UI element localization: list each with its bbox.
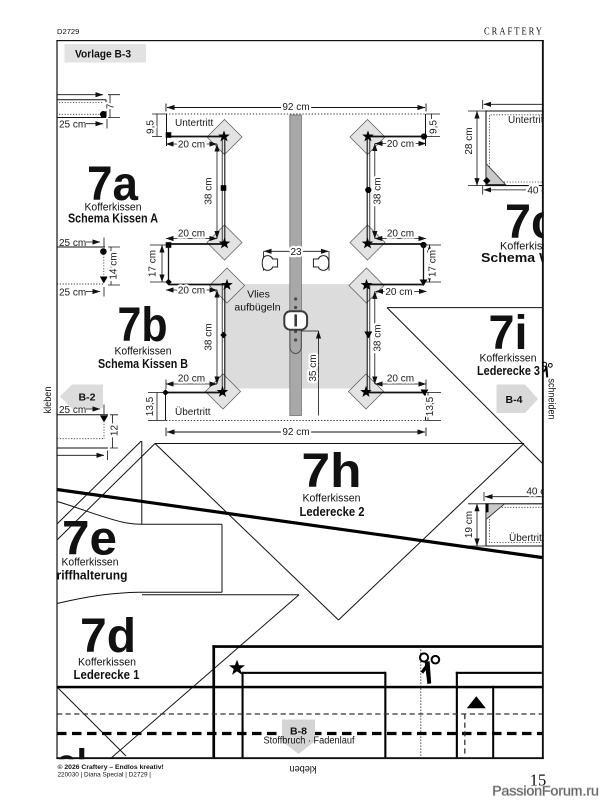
svg-text:92 cm: 92 cm	[282, 427, 309, 438]
svg-text:35 cm: 35 cm	[308, 354, 319, 381]
svg-text:Untertritt: Untertritt	[508, 115, 547, 126]
svg-text:20 cm: 20 cm	[178, 286, 205, 297]
svg-text:aufbügeln: aufbügeln	[234, 302, 280, 314]
svg-text:B-4: B-4	[506, 394, 523, 406]
svg-text:Kofferkissen: Kofferkissen	[480, 353, 537, 365]
svg-text:Vlies: Vlies	[247, 289, 270, 301]
svg-text:20 cm: 20 cm	[387, 229, 414, 240]
svg-text:B-8: B-8	[290, 726, 307, 738]
svg-text:20 cm: 20 cm	[387, 139, 414, 150]
svg-text:38 cm: 38 cm	[373, 177, 384, 204]
svg-text:20 cm: 20 cm	[385, 287, 412, 298]
svg-text:Übertritt: Übertritt	[509, 532, 545, 544]
svg-text:Kofferkissen: Kofferkissen	[303, 493, 361, 505]
svg-text:Stoffbruch · Fadenlauf: Stoffbruch · Fadenlauf	[264, 736, 355, 747]
svg-text:Lederecke 3: Lederecke 3	[477, 364, 540, 378]
svg-text:92 cm: 92 cm	[282, 102, 309, 113]
svg-text:25 cm: 25 cm	[59, 120, 86, 131]
svg-text:38 cm: 38 cm	[204, 323, 215, 350]
svg-text:CRAFTERY: CRAFTERY	[484, 27, 544, 38]
svg-text:38 cm: 38 cm	[373, 324, 384, 351]
svg-text:23: 23	[290, 247, 302, 258]
svg-text:schneiden: schneiden	[546, 379, 558, 420]
svg-text:Vorlage B-3: Vorlage B-3	[75, 49, 131, 61]
svg-text:riffhalterung: riffhalterung	[57, 569, 128, 583]
svg-text:38 cm: 38 cm	[204, 177, 215, 204]
svg-text:25 cm: 25 cm	[59, 288, 86, 299]
svg-text:© 2026 Craftery – Endlos kreat: © 2026 Craftery – Endlos kreativ!	[58, 763, 164, 771]
svg-text:Kofferkissen: Kofferkissen	[115, 346, 172, 358]
svg-text:kleben: kleben	[289, 763, 316, 775]
svg-text:7h: 7h	[302, 445, 362, 498]
svg-text:13,5: 13,5	[145, 396, 156, 416]
svg-text:Lederecke 1: Lederecke 1	[74, 668, 140, 682]
svg-text:19 cm: 19 cm	[464, 511, 475, 538]
svg-text:Kofferkissen: Kofferkissen	[62, 557, 119, 569]
svg-text:13,5: 13,5	[425, 396, 436, 416]
svg-text:12: 12	[110, 425, 121, 437]
svg-text:Untertritt: Untertritt	[175, 118, 214, 129]
svg-text:28 cm: 28 cm	[464, 127, 475, 154]
svg-text:Lederecke 2: Lederecke 2	[300, 505, 365, 519]
svg-text:7d: 7d	[80, 610, 136, 663]
svg-text:17 cm: 17 cm	[148, 250, 159, 277]
svg-text:9,5: 9,5	[146, 120, 157, 134]
svg-text:Übertritt: Übertritt	[175, 406, 211, 418]
svg-text:20 cm: 20 cm	[178, 140, 205, 151]
svg-text:220030 | Diana Special | D2729: 220030 | Diana Special | D2729 |	[58, 772, 152, 779]
svg-text:7b: 7b	[118, 299, 168, 352]
svg-text:20 cm: 20 cm	[387, 374, 414, 385]
svg-text:D2729: D2729	[57, 27, 79, 36]
svg-text:PassionForum.ru: PassionForum.ru	[492, 783, 599, 799]
svg-text:Schema Kissen A: Schema Kissen A	[68, 212, 158, 226]
svg-text:B-2: B-2	[79, 392, 96, 404]
svg-text:7: 7	[106, 103, 117, 109]
svg-text:kleben: kleben	[42, 386, 54, 413]
svg-text:Schema Kissen B: Schema Kissen B	[98, 357, 188, 371]
svg-text:17 cm: 17 cm	[428, 250, 439, 277]
svg-text:9,5: 9,5	[429, 120, 440, 134]
svg-text:14 cm: 14 cm	[109, 252, 120, 279]
svg-text:20 cm: 20 cm	[178, 374, 205, 385]
svg-text:20 cm: 20 cm	[178, 229, 205, 240]
svg-text:Kofferkissen: Kofferkissen	[78, 657, 136, 669]
